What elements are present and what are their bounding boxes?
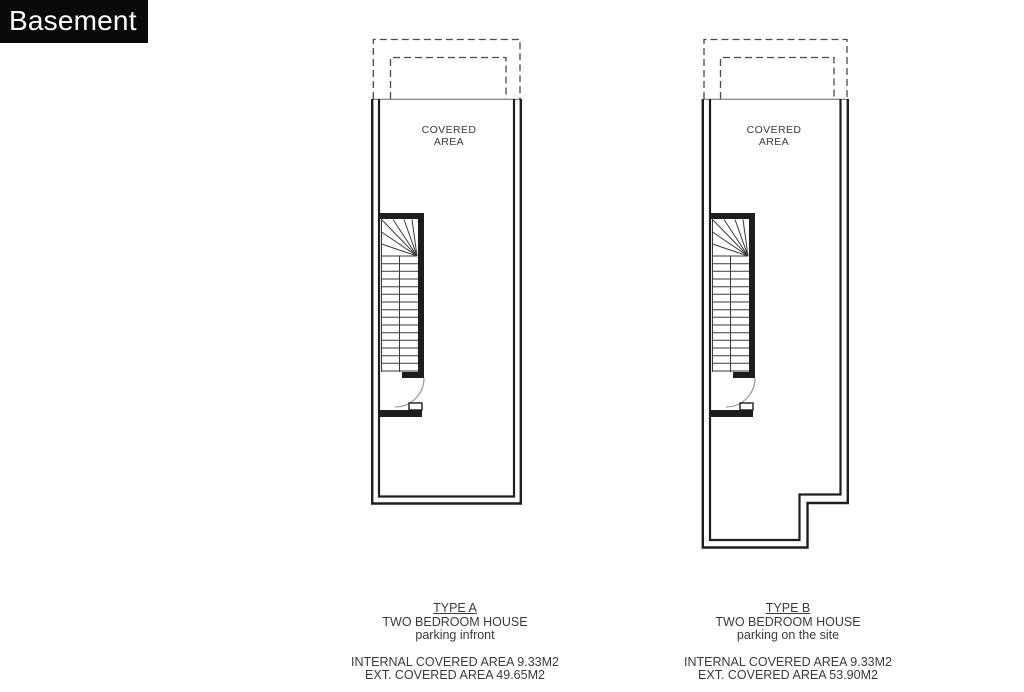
external-area-label-b: EXT. COVERED AREA 53.90M2 [638,669,938,683]
setback-dashed-outline-b [704,40,847,100]
floor-plan-type-a [372,40,521,504]
perimeter-walls-b [703,99,848,548]
covered-area-label-a: COVERED AREA [397,125,501,148]
setback-dashed-outline-a [373,40,520,100]
internal-area-label-a: INTERNAL COVERED AREA 9.33M2 [305,656,605,670]
house-type-label-a: TWO BEDROOM HOUSE [305,616,605,630]
perimeter-walls-a [372,99,521,504]
internal-area-label-b: INTERNAL COVERED AREA 9.33M2 [638,656,938,670]
parking-note-a: parking infront [305,629,605,643]
external-area-label-a: EXT. COVERED AREA 49.65M2 [305,669,605,683]
house-type-label-b: TWO BEDROOM HOUSE [638,616,938,630]
floor-plans-drawing [0,0,1024,692]
floor-plan-type-b [703,40,848,548]
covered-area-label-b: COVERED AREA [722,125,826,148]
plan-caption-a: TYPE A TWO BEDROOM HOUSE parking infront… [305,602,605,683]
type-b-label: TYPE B [638,602,938,616]
type-a-label: TYPE A [305,602,605,616]
plan-caption-b: TYPE B TWO BEDROOM HOUSE parking on the … [638,602,938,683]
parking-note-b: parking on the site [638,629,938,643]
basement-floor-plan-sheet: Basement [0,0,1024,692]
